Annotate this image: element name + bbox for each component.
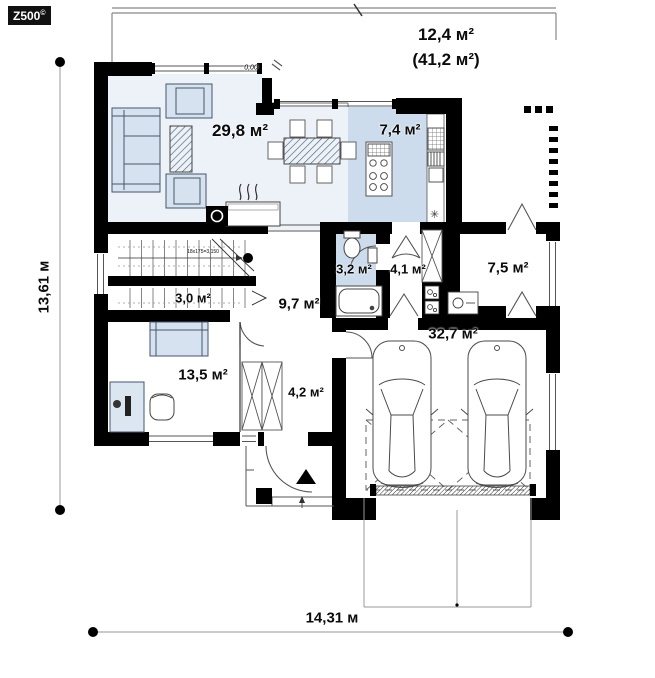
office-chair-icon xyxy=(150,394,174,420)
room-label-kitchen: 7,4 м² xyxy=(379,122,420,139)
room-label-hall: 4,1 м² xyxy=(390,262,426,277)
stair-note: 18x175=3,150 xyxy=(187,249,219,255)
entrance-arrow-icon xyxy=(296,469,316,484)
logo-mark: © xyxy=(40,10,45,17)
toilet-icon xyxy=(344,231,360,258)
armchair-icon xyxy=(166,174,206,208)
dimension-tick xyxy=(354,4,362,16)
room-label-cabinet: 13,5 м² xyxy=(178,367,227,384)
car-icon xyxy=(366,341,438,488)
staircase xyxy=(118,239,254,277)
kitchen-appliance-icon xyxy=(428,128,444,150)
dimension-width: 14,31 м xyxy=(306,610,359,627)
room-label-living: 29,8 м² xyxy=(212,121,268,141)
room-label-pantry: 3,0 м² xyxy=(175,291,211,306)
cooktop-icon xyxy=(370,173,377,180)
driveway xyxy=(364,498,531,607)
chair-icon xyxy=(341,142,356,159)
chair-icon xyxy=(317,120,332,137)
door-cabinet xyxy=(240,322,264,346)
porch-column xyxy=(256,488,272,504)
car-icon xyxy=(461,341,533,488)
dimension-depth: 13,61 м xyxy=(36,261,53,314)
sofa-icon xyxy=(112,108,160,192)
room-label-bathroom: 3,2 м² xyxy=(336,262,372,277)
garage-graphics xyxy=(364,341,536,607)
floor-level-mark: 0,00 xyxy=(244,65,258,72)
door-terrace-living xyxy=(272,60,282,70)
door-porch xyxy=(266,446,312,492)
door-hall-garage xyxy=(390,294,418,316)
chair-icon xyxy=(290,166,305,183)
brand-logo: Z500© xyxy=(8,6,51,25)
washer-icon xyxy=(448,292,478,314)
chair-icon xyxy=(268,142,283,159)
bathtub-icon xyxy=(336,286,382,316)
chair-icon xyxy=(317,166,332,183)
entry-wardrobe-icon xyxy=(242,362,282,430)
monitor-icon xyxy=(125,396,131,416)
chair-icon xyxy=(290,120,305,137)
stair-newel xyxy=(243,253,253,263)
plan-graphics: ✳ xyxy=(0,0,655,678)
door-kitchen-hall xyxy=(392,236,420,258)
floor-plan: ✳ xyxy=(0,0,655,678)
logo-text: Z500 xyxy=(13,9,40,23)
coffee-table-icon xyxy=(170,126,192,172)
kitchen-island-icon xyxy=(366,142,392,196)
room-label-garage: 32,7 м² xyxy=(428,326,477,343)
armchair-icon xyxy=(166,84,212,118)
room-label-utility: 7,5 м² xyxy=(487,260,528,277)
door-entry-garage xyxy=(346,332,372,358)
sofa-icon xyxy=(150,322,208,356)
room-label-hallway: 9,7 м² xyxy=(278,296,319,313)
arrow-icon xyxy=(252,291,266,305)
room-label-entry: 4,2 м² xyxy=(288,385,324,400)
dining-table-icon xyxy=(284,138,340,164)
porch xyxy=(246,446,334,508)
pergola-posts xyxy=(524,106,558,208)
room-label-terrace-total: (41,2 м²) xyxy=(412,50,479,70)
desk-icon xyxy=(110,382,144,432)
room-label-terrace: 12,4 м² xyxy=(418,25,474,45)
snowflake-icon: ✳ xyxy=(430,208,439,221)
